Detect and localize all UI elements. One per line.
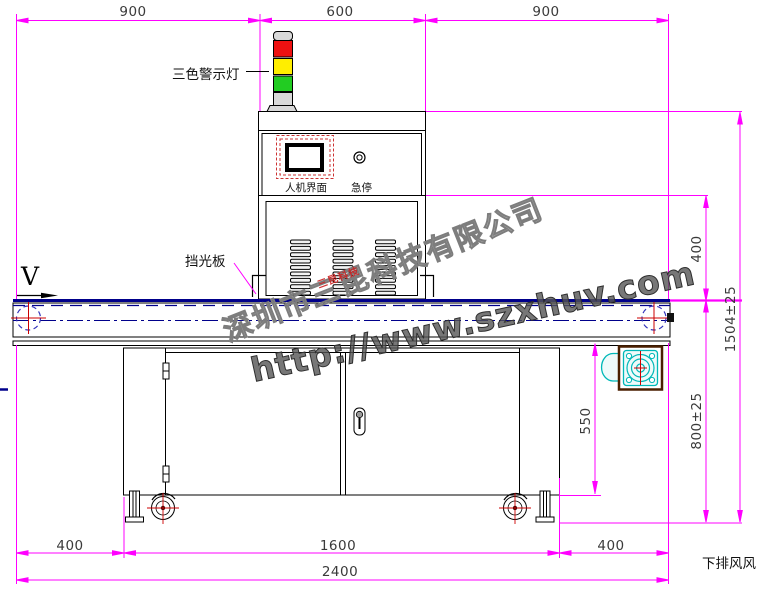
caster-left: [147, 493, 179, 524]
label-warning-light: 三色警示灯: [172, 63, 240, 83]
dim-top-center: 600: [305, 4, 375, 20]
dim-bottom-total: 2400: [302, 564, 378, 580]
dim-bottom-left: 400: [35, 538, 105, 554]
leveling-foot-left: [126, 491, 144, 522]
dim-top-left: 900: [98, 4, 168, 20]
dim-stand-550: 550: [578, 391, 594, 451]
dim-bottom-right: 400: [576, 538, 646, 554]
caster-right: [499, 493, 531, 524]
dim-right-400: 400: [689, 219, 705, 279]
engineering-drawing-canvas: 深圳市三昆科技有限公司 http://www.szxhuv.com 三昆科技 9…: [0, 0, 760, 599]
dim-right-1504: 1504±25: [723, 276, 739, 362]
label-bottom-exhaust: 下排风风: [702, 552, 756, 572]
direction-arrow: [17, 293, 58, 299]
dim-top-right: 900: [511, 4, 581, 20]
dim-right-800: 800±25: [689, 378, 705, 464]
label-light-shield: 挡光板: [185, 250, 226, 270]
dim-bottom-center: 1600: [300, 538, 376, 554]
warning-tower: [267, 32, 297, 112]
exhaust-fan: [602, 347, 662, 390]
label-estop: 急停: [351, 180, 372, 195]
leveling-foot-right: [536, 491, 554, 522]
label-hmi: 人机界面: [285, 180, 327, 195]
label-direction-v: V: [21, 262, 39, 291]
